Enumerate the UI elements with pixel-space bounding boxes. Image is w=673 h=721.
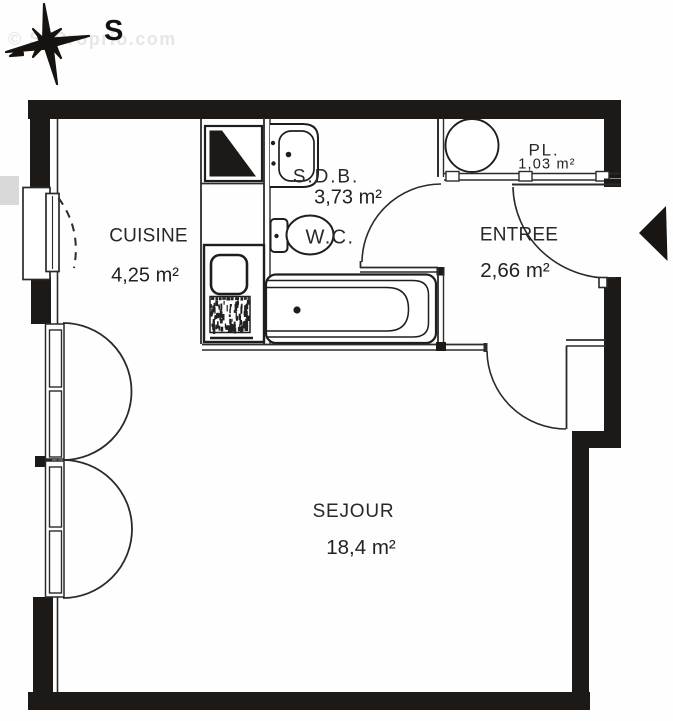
svg-text:W.C.: W.C. [306,227,355,249]
svg-text:S: S [104,15,123,47]
svg-text:SEJOUR: SEJOUR [313,501,395,522]
svg-text:S.D.B.: S.D.B. [293,167,359,188]
svg-text:2,66 m²: 2,66 m² [480,259,550,282]
svg-text:18,4 m²: 18,4 m² [326,536,396,559]
svg-text:1,03 m²: 1,03 m² [518,157,576,173]
svg-text:ENTREE: ENTREE [480,225,558,246]
svg-text:4,25 m²: 4,25 m² [111,265,179,287]
svg-text:3,73 m²: 3,73 m² [314,187,382,209]
svg-text:CUISINE: CUISINE [109,226,187,247]
